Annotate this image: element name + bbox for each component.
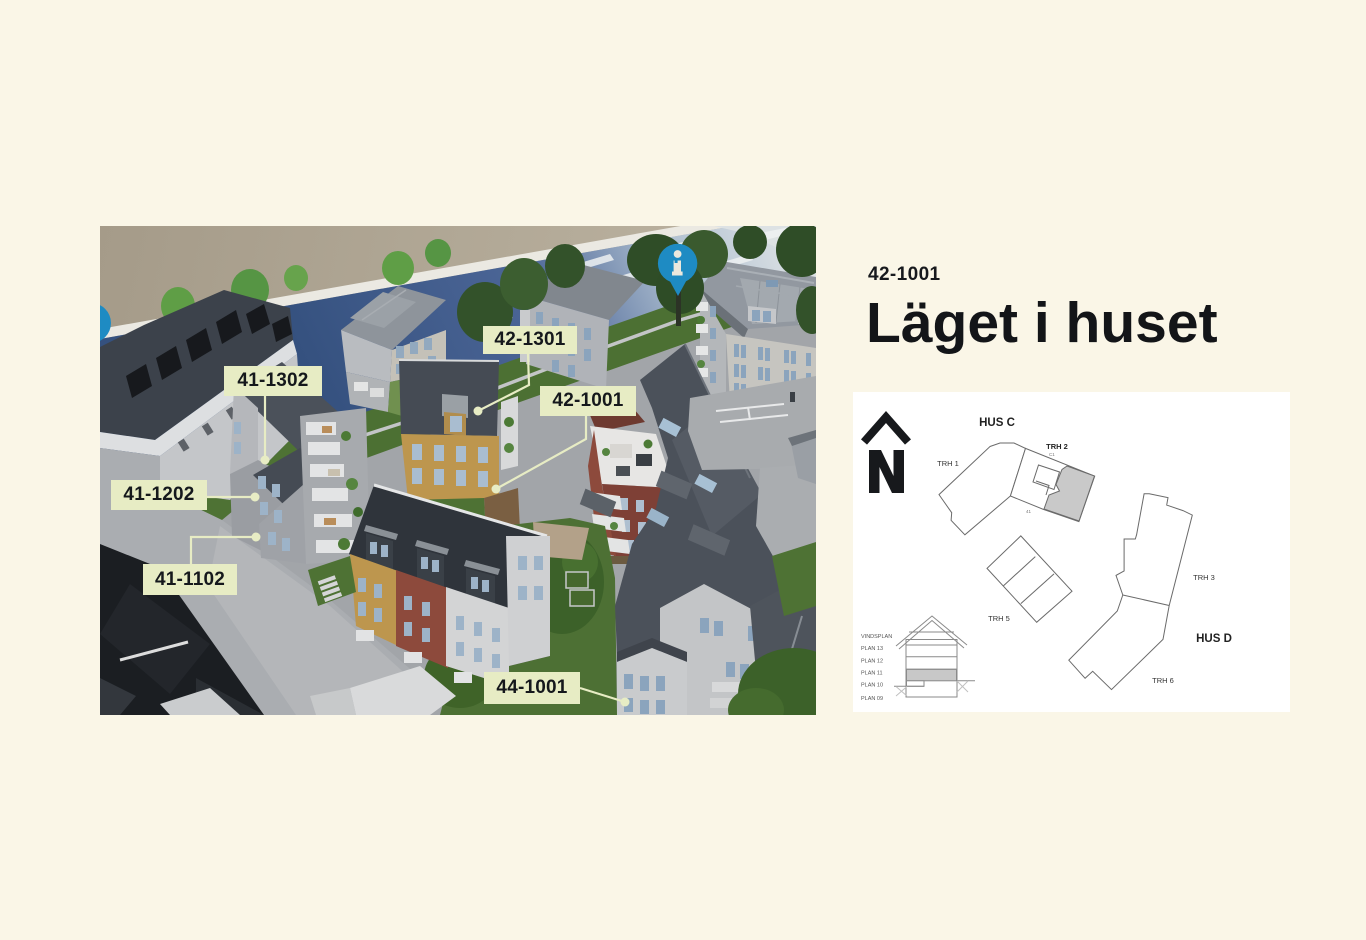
svg-text:41: 41 [1026,509,1032,514]
svg-text:TRH 6: TRH 6 [1152,676,1174,685]
svg-text:PLAN 11: PLAN 11 [861,671,883,677]
svg-text:HUS C: HUS C [979,417,1015,429]
svg-text:TRH 5: TRH 5 [988,614,1010,623]
svg-text:TRH 3: TRH 3 [1193,573,1215,582]
svg-text:C1: C1 [1049,452,1055,457]
svg-text:VINDSPLAN: VINDSPLAN [861,634,892,640]
svg-text:PLAN 13: PLAN 13 [861,646,883,652]
svg-text:TRH 1: TRH 1 [937,459,959,468]
svg-text:PLAN 09: PLAN 09 [861,696,883,702]
svg-text:HUS D: HUS D [1196,633,1232,645]
svg-text:PLAN 10: PLAN 10 [861,683,883,689]
svg-text:PLAN 12: PLAN 12 [861,659,883,665]
svg-text:TRH 2: TRH 2 [1046,442,1068,451]
